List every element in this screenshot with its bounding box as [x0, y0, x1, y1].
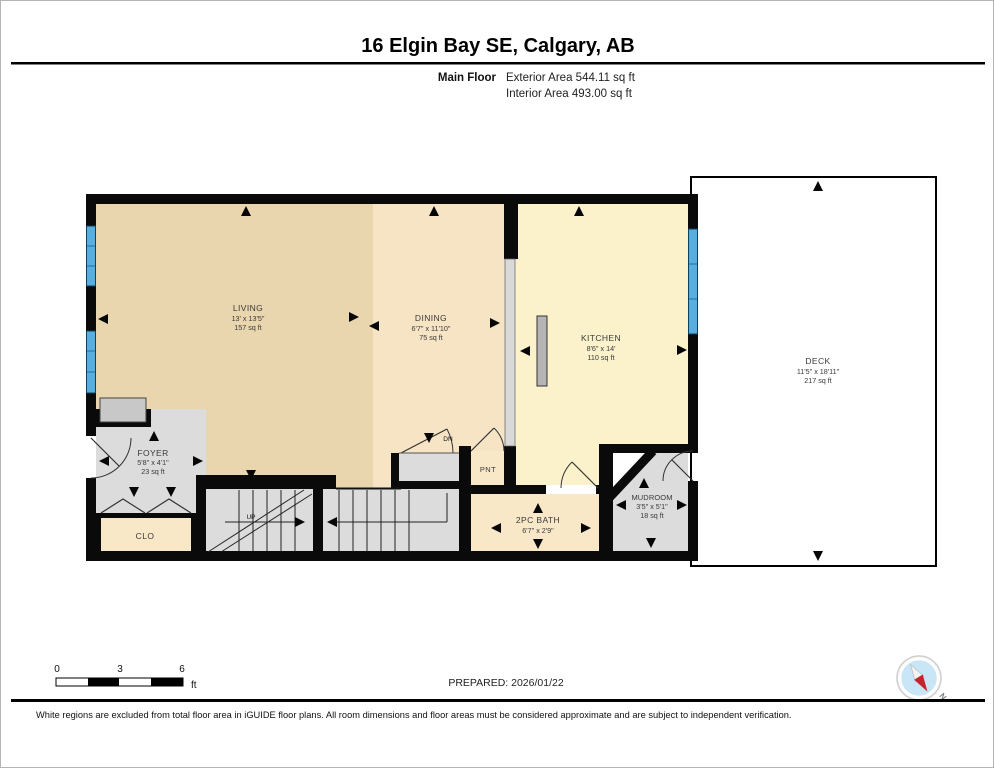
room-mudroom-dims: 3'5" x 5'1" — [636, 502, 668, 511]
footer-rule — [11, 699, 985, 702]
room-kitchen-floor-ext — [515, 444, 599, 485]
scale-tick-0: 0 — [54, 664, 60, 675]
room-closet-name: CLO — [136, 531, 155, 541]
room-kitchen-name: KITCHEN — [581, 333, 621, 343]
room-pantry-name: PNT — [480, 465, 496, 474]
compass-icon: N — [897, 656, 948, 702]
room-living-name: LIVING — [233, 303, 263, 313]
scale-bar-segment — [151, 678, 183, 686]
scale-tick-3: 3 — [117, 664, 123, 675]
interior-area-label: Interior Area 493.00 sq ft — [506, 88, 633, 100]
page-title: 16 Elgin Bay SE, Calgary, AB — [361, 35, 634, 57]
room-dining-floor-ext — [373, 453, 391, 489]
window-kitchen — [689, 229, 698, 334]
room-kitchen-area: 110 sq ft — [587, 353, 614, 362]
room-bath-dims: 6'7" x 2'9" — [522, 526, 554, 535]
half-wall-divider — [505, 259, 515, 446]
room-living-floor-ext — [336, 475, 373, 489]
disclaimer-text: White regions are excluded from total fl… — [36, 710, 792, 720]
room-dining-dims: 6'7" x 11'10" — [412, 324, 451, 333]
room-kitchen-dims: 8'6" x 14' — [587, 344, 617, 353]
room-foyer-area: 23 sq ft — [141, 467, 165, 476]
room-dining-name: DINING — [415, 313, 447, 323]
stairs-up-label: UP — [246, 514, 255, 521]
stairs-down-label: DN — [443, 436, 453, 443]
room-deck-area: 217 sq ft — [804, 376, 832, 385]
scale-unit-label: ft — [191, 680, 197, 691]
room-mudroom-area: 18 sq ft — [640, 511, 664, 520]
header: 16 Elgin Bay SE, Calgary, AB Main Floor … — [11, 35, 985, 100]
room-deck-dims: 11'5" x 18'11" — [797, 367, 840, 376]
scale-tick-6: 6 — [179, 664, 185, 675]
room-bath-name: 2PC BATH — [516, 515, 560, 525]
floor-label: Main Floor — [438, 72, 497, 84]
scale-bar: 0 3 6 ft — [54, 664, 197, 691]
kitchen-counter-fixture — [537, 316, 547, 386]
room-mudroom-name: MUDROOM — [631, 493, 672, 502]
stairs-down-floor — [323, 488, 459, 553]
room-dining-area: 75 sq ft — [419, 333, 443, 342]
fireplace-fixture — [100, 398, 146, 422]
scale-bar-segment — [88, 678, 119, 686]
prepared-date-label: PREPARED: 2026/01/22 — [448, 677, 564, 689]
floorplan-page: 16 Elgin Bay SE, Calgary, AB Main Floor … — [0, 0, 994, 768]
window-living-2 — [87, 331, 96, 393]
room-living-area: 157 sq ft — [234, 323, 262, 332]
floor-plan-canvas: 16 Elgin Bay SE, Calgary, AB Main Floor … — [1, 1, 994, 768]
room-foyer-dims: 5'8" x 4'1" — [137, 458, 169, 467]
window-living-1 — [87, 226, 96, 286]
room-foyer-name: FOYER — [137, 448, 168, 458]
exterior-area-label: Exterior Area 544.11 sq ft — [506, 72, 636, 84]
room-living-dims: 13' x 13'5" — [232, 314, 265, 323]
header-rule — [11, 62, 985, 65]
room-deck-name: DECK — [805, 356, 830, 366]
